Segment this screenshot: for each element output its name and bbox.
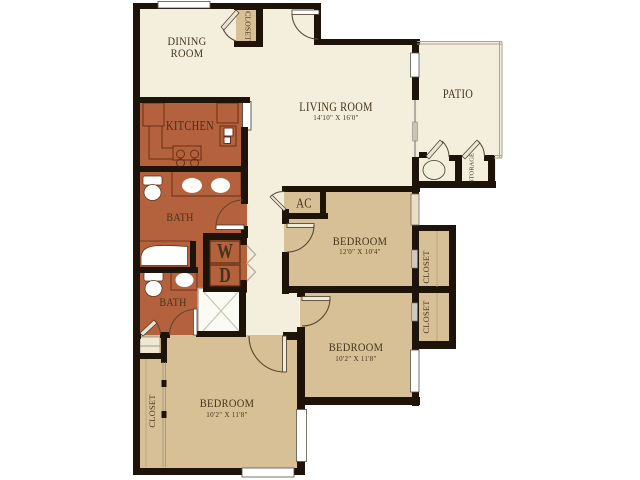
svg-text:D: D [219, 264, 231, 288]
svg-text:12'0" X 10'4": 12'0" X 10'4" [339, 248, 381, 256]
svg-text:10'2" X 11'8": 10'2" X 11'8" [206, 411, 247, 419]
svg-text:BATH: BATH [166, 211, 193, 224]
svg-text:PATIO: PATIO [443, 88, 473, 101]
svg-text:DINING: DINING [167, 36, 206, 49]
svg-text:CLOSET: CLOSET [244, 11, 253, 41]
svg-text:AC: AC [296, 196, 312, 211]
svg-text:CLOSET: CLOSET [421, 250, 431, 284]
svg-text:10'2" X 11'8": 10'2" X 11'8" [335, 355, 376, 363]
svg-text:BATH: BATH [159, 296, 186, 309]
svg-text:BEDROOM: BEDROOM [329, 342, 384, 355]
svg-text:14'10" X 16'0": 14'10" X 16'0" [313, 114, 359, 122]
svg-text:BEDROOM: BEDROOM [200, 398, 255, 411]
svg-text:CLOSET: CLOSET [147, 394, 157, 428]
svg-text:STORAGE: STORAGE [469, 153, 476, 183]
svg-text:KITCHEN: KITCHEN [166, 118, 214, 134]
svg-text:ROOM: ROOM [171, 48, 204, 61]
svg-text:LIVING ROOM: LIVING ROOM [299, 101, 373, 114]
svg-text:W: W [217, 240, 233, 264]
svg-text:BEDROOM: BEDROOM [333, 236, 388, 249]
svg-text:CLOSET: CLOSET [421, 300, 431, 334]
